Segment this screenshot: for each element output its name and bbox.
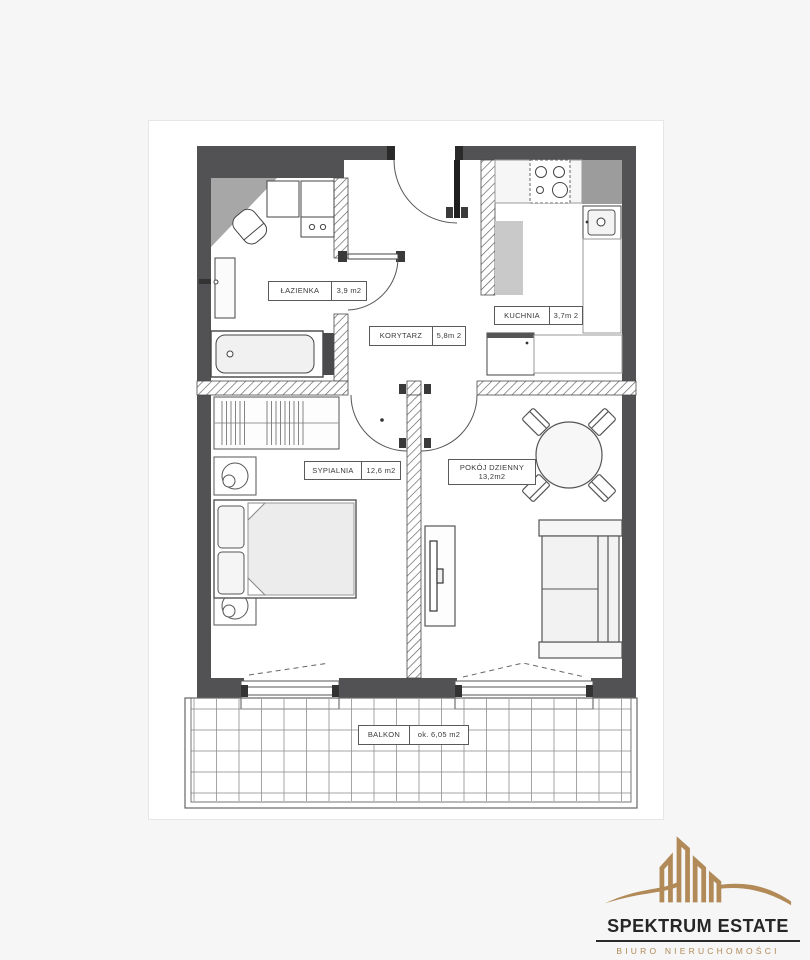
room-label-kuchnia: KUCHNIA 3,7m 2	[494, 306, 583, 325]
room-label-lazienka: ŁAZIENKA 3,9 m2	[268, 281, 367, 301]
bathroom-furniture	[199, 178, 334, 377]
room-area: 3,7m 2	[549, 307, 582, 324]
room-area: 12,6 m2	[361, 462, 400, 479]
page: ŁAZIENKA 3,9 m2 KORYTARZ 5,8m 2 KUCHNIA …	[0, 0, 810, 960]
logo-subtitle: BIURO NIERUCHOMOŚCI	[596, 946, 800, 956]
livingroom-furniture	[425, 408, 622, 658]
room-name: POKÓJ DZIENNY	[460, 463, 524, 473]
room-name: KUCHNIA	[495, 307, 549, 324]
room-name: ŁAZIENKA	[269, 282, 331, 300]
room-label-sypialnia: SYPIALNIA 12,6 m2	[304, 461, 401, 480]
logo-building-icon	[603, 826, 793, 918]
room-area: ok. 6,05 m2	[409, 726, 468, 744]
floorplan-card: ŁAZIENKA 3,9 m2 KORYTARZ 5,8m 2 KUCHNIA …	[148, 120, 664, 820]
room-name: SYPIALNIA	[305, 462, 361, 479]
floorplan-drawing	[149, 121, 663, 819]
room-name: KORYTARZ	[370, 327, 432, 345]
room-name: BALKON	[359, 726, 409, 744]
room-area: 3,9 m2	[331, 282, 366, 300]
bedroom-furniture	[214, 397, 356, 625]
logo: SPEKTRUM ESTATE BIURO NIERUCHOMOŚCI	[596, 826, 800, 956]
room-area: 5,8m 2	[432, 327, 465, 345]
kitchen-furniture	[487, 160, 622, 375]
room-label-pokoj-dzienny: POKÓJ DZIENNY 13,2m2	[448, 459, 536, 485]
room-label-balkon: BALKON ok. 6,05 m2	[358, 725, 469, 745]
logo-title: SPEKTRUM ESTATE	[596, 916, 800, 942]
room-area: 13,2m2	[479, 472, 506, 482]
balcony	[185, 698, 637, 808]
room-label-korytarz: KORYTARZ 5,8m 2	[369, 326, 466, 346]
